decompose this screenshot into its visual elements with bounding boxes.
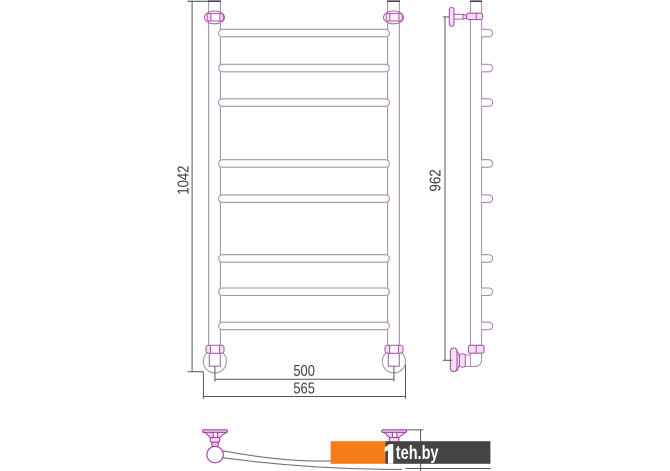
svg-text:teh.by: teh.by xyxy=(396,443,439,464)
svg-text:565: 565 xyxy=(293,381,315,398)
svg-text:962: 962 xyxy=(427,169,444,191)
svg-text:1042: 1042 xyxy=(176,166,193,195)
svg-text:500: 500 xyxy=(293,363,315,380)
